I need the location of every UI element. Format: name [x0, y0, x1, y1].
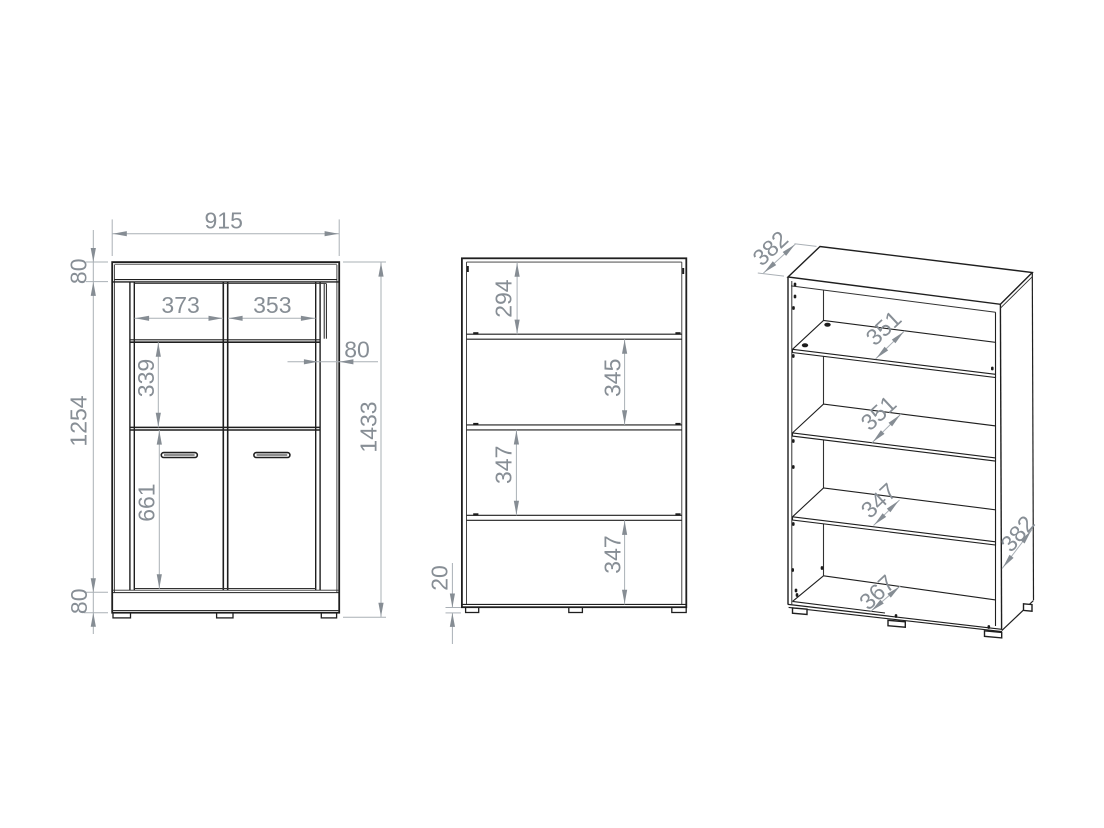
svg-text:1433: 1433	[356, 401, 382, 452]
svg-text:80: 80	[66, 589, 92, 615]
svg-text:20: 20	[427, 565, 453, 591]
svg-text:373: 373	[161, 292, 199, 318]
svg-text:347: 347	[599, 535, 625, 573]
svg-text:345: 345	[599, 359, 625, 397]
svg-text:80: 80	[66, 259, 92, 285]
svg-text:661: 661	[133, 483, 159, 521]
svg-text:347: 347	[491, 446, 517, 484]
svg-text:915: 915	[205, 208, 243, 234]
svg-text:80: 80	[344, 336, 370, 362]
svg-text:353: 353	[253, 292, 291, 318]
svg-text:1254: 1254	[66, 395, 92, 446]
svg-text:294: 294	[491, 279, 517, 318]
svg-text:339: 339	[133, 359, 159, 397]
